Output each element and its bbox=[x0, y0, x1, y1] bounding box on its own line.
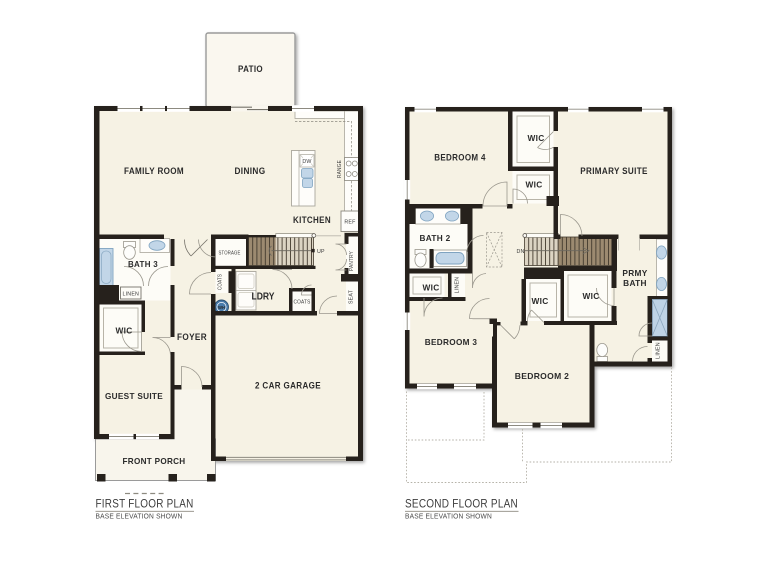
svg-text:BASE ELEVATION SHOWN: BASE ELEVATION SHOWN bbox=[405, 512, 492, 521]
svg-text:BASE ELEVATION SHOWN: BASE ELEVATION SHOWN bbox=[96, 512, 183, 521]
svg-text:KITCHEN: KITCHEN bbox=[293, 215, 331, 225]
svg-text:BEDROOM 4: BEDROOM 4 bbox=[434, 153, 486, 163]
svg-text:REF: REF bbox=[344, 220, 356, 226]
svg-text:FAMILY ROOM: FAMILY ROOM bbox=[124, 166, 184, 176]
svg-text:DW: DW bbox=[302, 159, 311, 165]
svg-text:WIC: WIC bbox=[422, 283, 439, 293]
svg-text:FOYER: FOYER bbox=[177, 332, 207, 342]
svg-text:UP: UP bbox=[317, 249, 325, 255]
svg-text:BATH 2: BATH 2 bbox=[420, 233, 451, 243]
svg-text:WH: WH bbox=[218, 305, 225, 310]
svg-text:RANGE: RANGE bbox=[337, 160, 343, 178]
svg-text:WIC: WIC bbox=[531, 296, 548, 306]
svg-text:DN: DN bbox=[517, 249, 525, 255]
svg-text:PRIMARY SUITE: PRIMARY SUITE bbox=[580, 166, 648, 176]
svg-text:GUEST SUITE: GUEST SUITE bbox=[105, 391, 163, 401]
svg-text:LINEN: LINEN bbox=[122, 291, 139, 297]
svg-text:PRMY: PRMY bbox=[622, 268, 647, 278]
svg-text:PATIO: PATIO bbox=[238, 64, 263, 74]
svg-text:LINEN: LINEN bbox=[455, 277, 461, 294]
svg-text:WIC: WIC bbox=[527, 133, 544, 143]
svg-text:BATH 3: BATH 3 bbox=[128, 259, 158, 269]
svg-text:STORAGE: STORAGE bbox=[219, 251, 241, 257]
svg-text:COATS: COATS bbox=[218, 274, 224, 290]
svg-text:PANTRY: PANTRY bbox=[349, 251, 355, 271]
svg-text:FIRST FLOOR PLAN: FIRST FLOOR PLAN bbox=[96, 497, 194, 511]
svg-text:SECOND FLOOR PLAN: SECOND FLOOR PLAN bbox=[405, 497, 518, 511]
svg-text:FRONT PORCH: FRONT PORCH bbox=[123, 456, 186, 466]
svg-text:LDRY: LDRY bbox=[252, 291, 275, 303]
svg-text:BEDROOM 3: BEDROOM 3 bbox=[425, 337, 478, 347]
svg-text:BATH: BATH bbox=[623, 278, 647, 288]
svg-text:WIC: WIC bbox=[525, 180, 542, 190]
svg-text:SEAT: SEAT bbox=[349, 289, 355, 304]
svg-text:WIC: WIC bbox=[115, 326, 132, 336]
svg-text:LINEN: LINEN bbox=[656, 342, 662, 359]
svg-text:COATS: COATS bbox=[294, 300, 311, 306]
svg-text:2 CAR GARAGE: 2 CAR GARAGE bbox=[255, 381, 321, 391]
svg-text:WIC: WIC bbox=[582, 291, 599, 301]
svg-text:DINING: DINING bbox=[235, 166, 266, 176]
svg-text:BEDROOM 2: BEDROOM 2 bbox=[515, 371, 570, 381]
